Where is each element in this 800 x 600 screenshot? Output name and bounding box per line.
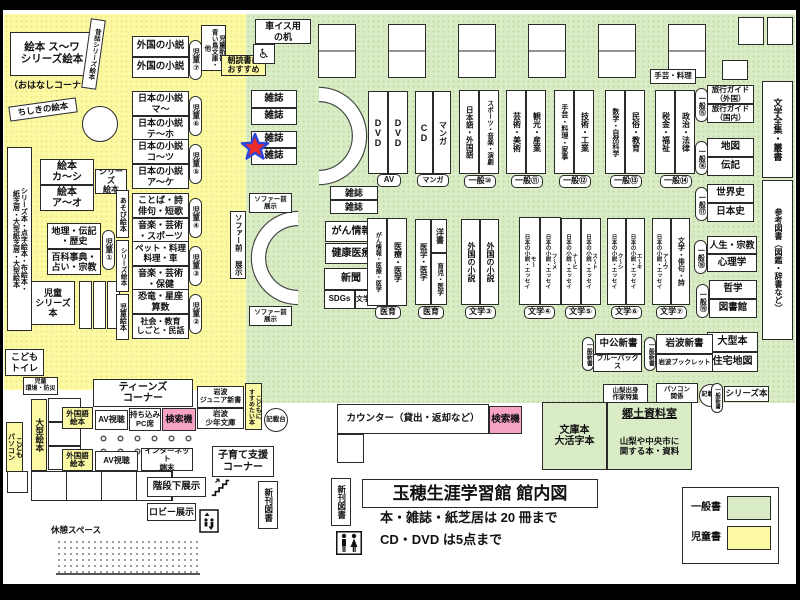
counter-leg — [337, 434, 364, 463]
japanese-foreign-lang-col: 日本語・外国語 — [459, 90, 479, 174]
toilet-icon-item — [336, 531, 362, 555]
medical-tag-2: 医育 — [418, 306, 444, 319]
childcare-medical-col: 育児・医学 — [431, 253, 447, 305]
medical-col-1: 医療・医学 — [387, 218, 407, 306]
legend-children-label: 児童書 — [688, 530, 724, 546]
pc-related: パソコン 関係 — [656, 383, 698, 403]
magazines-3a: 雑誌 — [330, 186, 378, 200]
tech-industry-col: 技術・工業 — [574, 90, 594, 174]
tax-welfare-col: 税金・福祉 — [655, 90, 675, 174]
general-tag-10: 一般⑩ — [464, 175, 496, 188]
jp-novels-ko-tsu: 日本の小説 コ～ツ — [132, 139, 189, 164]
restroom-icon — [336, 531, 362, 555]
general-tag-19: 一般⑲ — [696, 284, 709, 318]
literature-tag-6: 文学⑥ — [611, 306, 642, 319]
stairs-icon — [209, 475, 231, 499]
magazines-1b: 雑誌 — [251, 108, 297, 125]
children-env-display: 児童 環境・防災 — [23, 377, 58, 395]
corner-shelf-2 — [767, 17, 793, 45]
study-table-2 — [388, 24, 426, 78]
av-seat-1: AV視聴 — [95, 410, 128, 430]
map-title: 玉穂生涯学習館 館内図 — [362, 479, 598, 508]
av-tag: AV — [377, 174, 401, 187]
search-terminal-1: 検索機 — [162, 408, 196, 431]
japan-history-shelf: 日本史 — [707, 203, 754, 222]
jp-novels-essay-ku-shi: 日本の小説・エッセイ ク～シ — [607, 218, 626, 305]
medical-tag-1: 医育 — [375, 306, 401, 319]
large-books-shelf: 大型本 — [707, 332, 758, 352]
foreign-picturebooks-1: 外国語 絵本 — [62, 407, 93, 429]
elevator-icon-item — [198, 508, 219, 534]
under-stairs-display: 階段下展示 — [147, 477, 206, 497]
writing-desk-1: 記載台 — [264, 408, 288, 432]
library-floor-map: 絵本 ス～ワ シリーズ絵本（おはなしコーナー）昔話シリーズ絵本ちしきの絵本絵本 … — [0, 0, 800, 600]
literature-tag-5: 文学⑤ — [565, 306, 596, 319]
you-are-here-star-icon — [240, 132, 270, 162]
wheelchair-icon-item: ♿ — [253, 44, 275, 64]
kids-toilet: こども トイレ — [5, 349, 44, 376]
medical-col-2: 医学・医学 — [415, 219, 431, 305]
children-tag-4: 児童④ — [189, 198, 202, 238]
pet-cooking-shelf: ペット・料理 料理・車 — [132, 241, 189, 266]
reference-books: 参考図書（図鑑・辞書など） — [762, 180, 793, 340]
kids-recommend-shelf: こどもに すすめたい本 — [245, 383, 262, 430]
library-shelf: 図書館 — [709, 299, 757, 318]
psychology-shelf: 心理学 — [707, 254, 757, 272]
sdgs-shelf: SDGs — [324, 290, 355, 309]
philosophy-shelf: 哲学 — [709, 280, 757, 299]
art-fine-col: 芸術・美術 — [506, 90, 526, 174]
children-tag-5: 児童⑤ — [189, 144, 202, 184]
rule-1: 本・雑誌・紙芝居は 20 冊まで — [380, 509, 606, 527]
manga-col: マンガ — [433, 91, 451, 174]
manga-tag: マンガ — [417, 174, 449, 187]
cancer-medical-col: がん情報・医療・医学 — [367, 218, 387, 306]
sports-music-theater-col: スポーツ・音楽・演劇 — [479, 90, 499, 174]
general-tag-16: 一般⑯ — [695, 141, 708, 175]
lobby-display: ロビー展示 — [147, 503, 196, 521]
general-tag-11: 一般⑪ — [511, 175, 543, 188]
stairs-icon-item — [209, 475, 231, 499]
shelf-a — [79, 281, 92, 329]
foreign-picturebooks-2: 外国語 絵本 — [62, 449, 93, 471]
general-shinsho-tag-1: 一般新書 — [582, 337, 594, 371]
iwanami-booklet: 岩波ブックレット — [656, 354, 713, 372]
corner-shelf-3 — [722, 60, 748, 80]
jp-novels-essay-e-ki: 日本の小説・エッセイ エ～キ — [626, 218, 645, 305]
general-shinsho-tag-2: 一般新書 — [644, 337, 656, 371]
society-edu-shelf: 社会・教育 しごと・民話 — [132, 314, 189, 339]
jp-novels-essay-su-to: 日本の小説・エッセイ ス～ト — [581, 218, 601, 305]
corner-shelf-1 — [738, 17, 764, 45]
politics-law-col: 政治・法律 — [675, 90, 695, 174]
legend-children-swatch — [727, 526, 771, 550]
play-picturebooks: あそび絵本 — [116, 190, 129, 238]
magazines-1a: 雑誌 — [251, 90, 297, 108]
dvd-col-1: DVD — [368, 91, 388, 174]
jp-novels-essay-a-u: 日本の小説・エッセイ ア～ウ — [652, 218, 671, 305]
general-shinsho-tag-3: 一般新書 — [711, 383, 723, 413]
folklore-edu-col: 民俗・教育 — [625, 90, 645, 174]
iwanami-junior-shinsho: 岩波 ジュニア新書 — [197, 386, 244, 408]
teens-corner: ティーンズ コーナー — [93, 379, 193, 407]
music-art-sports-shelf: 音楽・芸術 ・スポーツ — [132, 218, 189, 243]
wheelchair-icon: ♿ — [258, 47, 270, 62]
iwanami-youth-bunko: 岩波 少年文庫 — [197, 408, 244, 429]
children-series-shelf: 児童 シリーズ本 — [31, 281, 75, 325]
handicraft-sign: 手芸・料理 — [650, 69, 696, 84]
sofa-display-1: ソファー前 展示 — [249, 193, 292, 213]
children-tag-1: 児童① — [102, 230, 115, 270]
children-tag-6: 児童⑥ — [189, 96, 202, 136]
magazines-3b: 雑誌 — [330, 200, 378, 214]
bunkobon-area: 文庫本 大活字本 — [542, 402, 607, 470]
series-picturebooks-v: シリーズ絵本 — [116, 240, 129, 292]
legend-general-label: 一般書 — [688, 500, 724, 516]
jp-novels-essay-fu-me: 日本の小説・エッセイ フ～メ — [540, 217, 561, 305]
literature-complete-works: 文学全集・叢書 — [762, 81, 793, 178]
kids-computer: こども パソコン — [6, 422, 23, 472]
jp-novels-a-ke: 日本の小説 ア～ケ — [132, 164, 189, 189]
study-table-1 — [318, 24, 356, 78]
general-tag-17: 一般⑰ — [695, 187, 708, 221]
general-tag-14: 一般⑭ — [660, 175, 692, 188]
literature-tag-4: 文学④ — [524, 306, 555, 319]
av-seat-2: AV視聴 — [95, 451, 138, 471]
music-art-health-shelf: 音楽・芸術 ・保健 — [132, 266, 189, 291]
jp-novels-essay-mo: 日本の小説・エッセイ モ～ — [519, 217, 540, 305]
childcare-corner: 子育て支援 コーナー — [212, 446, 274, 477]
general-tag-15: 一般⑮ — [695, 88, 708, 122]
internet-terminal: インターネット 端末 — [141, 448, 193, 471]
picturebook-a-o: 絵本 ア～オ — [40, 185, 94, 211]
round-table — [82, 106, 118, 142]
rest-space-area — [56, 539, 200, 575]
dino-star-math-shelf: 恐竜・星座 算数 — [132, 289, 189, 314]
shelf-b — [93, 281, 106, 329]
jp-novels-essay-na-hi: 日本の小説・エッセイ ナ～ヒ — [561, 218, 581, 305]
cd-col: CD — [415, 91, 433, 174]
study-table-5 — [598, 24, 636, 78]
travel-guide-domestic: 旅行ガイド （国内） — [707, 104, 754, 123]
children-picturebooks-v: 児童絵本 — [116, 294, 129, 340]
rest-space-label: 休憩スペース — [44, 525, 108, 537]
literature-tag-3: 文学③ — [465, 306, 496, 319]
wheelchair-desk: 車イス用 の机 — [255, 19, 311, 44]
encyclopedia-shelf: 百科事典・ 占い・宗教 — [47, 249, 101, 275]
picturebook-ka-shi: 絵本 カ～シ — [40, 159, 94, 185]
special-collection-shelf: シリーズ本・点字絵本・布絵本・ 紙芝居・大型紙芝居・大型絵本 — [7, 147, 32, 331]
maps-shelf: 地図 — [707, 138, 754, 157]
search-terminal-2: 検索機 — [489, 406, 522, 434]
foreign-novels-kids-2: 外国の小説 — [132, 57, 189, 78]
foreign-novels-kids-1: 外国の小説 — [132, 36, 189, 57]
handicraft-cooking-col: 手芸・料理・家事 — [554, 90, 574, 174]
elevator-icon — [199, 509, 219, 533]
legend-general-swatch — [727, 496, 771, 520]
literature-poetry-col: 文学・俳句・詩 — [671, 218, 690, 305]
new-books-2: 新刊図書 — [331, 478, 351, 526]
picturebook-su-wa: 絵本 ス～ワ シリーズ絵本 — [10, 32, 94, 76]
iwanami-shinsho: 岩波新書 — [656, 334, 713, 354]
yamanashi-authors: 山梨出身 作家特集 — [603, 384, 648, 404]
tourism-industry-col: 観光・産業 — [526, 90, 546, 174]
kyodo-sub: 山梨や中央市に 関する本・資料 — [609, 428, 690, 466]
sofa-display-v: ソファー前 展示 — [230, 211, 246, 279]
you-are-here-star — [240, 132, 270, 162]
children-tag-3: 児童③ — [189, 246, 202, 286]
math-science-col: 数学・自然科学 — [605, 90, 625, 174]
chuko-shinsho: 中公新書 — [595, 334, 642, 354]
life-religion-shelf: 人生・宗教 — [707, 236, 757, 254]
jp-novels-ma: 日本の小説 マ～ — [132, 91, 189, 116]
travel-guide-foreign: 旅行ガイド （外国） — [707, 85, 754, 104]
children-tag-2: 児童② — [189, 294, 202, 334]
counter: カウンター（貸出・返却など） — [337, 404, 489, 434]
study-table-3 — [458, 24, 496, 78]
foreign-novels-col-2: 外国の小説 — [480, 219, 499, 305]
kyodo-title: 郷土資料室 — [609, 406, 690, 422]
shelf-g — [7, 471, 28, 493]
geography-biography-shelf: 地理・伝記 ・歴史 — [47, 223, 101, 249]
biography-shelf: 伝記 — [707, 157, 754, 176]
general-tag-18: 一般⑱ — [694, 240, 707, 274]
new-books-1: 新刊図書 — [258, 481, 278, 529]
foreign-novels-col-1: 外国の小説 — [461, 219, 480, 305]
world-history-shelf: 世界史 — [707, 184, 754, 203]
general-tag-12: 一般⑫ — [559, 175, 591, 188]
series-books-label: シリーズ本 — [724, 386, 769, 402]
language-poetry-shelf: ことば・詩 俳句・短歌 — [132, 193, 189, 218]
literature-tag-7: 文学⑦ — [656, 306, 687, 319]
western-books-col: 洋書 — [431, 219, 447, 253]
dvd-col-2: DVD — [388, 91, 408, 174]
byo-pc-seat: 持ち込み PC席 — [129, 408, 161, 431]
study-table-4 — [528, 24, 566, 78]
bluebacks: ブルーバックス — [593, 354, 642, 372]
general-tag-13: 一般⑬ — [610, 175, 642, 188]
rule-2: CD・DVD は5点まで — [380, 531, 570, 549]
big-picturebook-shelf: 大型絵本 — [31, 399, 47, 471]
jp-novels-te-ho: 日本の小説 テ～ホ — [132, 116, 189, 141]
residential-maps-shelf: 住宅地図 — [707, 352, 758, 372]
sofa-display-2: ソファー前 展示 — [249, 306, 292, 326]
children-tag-7: 児童⑦ — [189, 40, 202, 80]
